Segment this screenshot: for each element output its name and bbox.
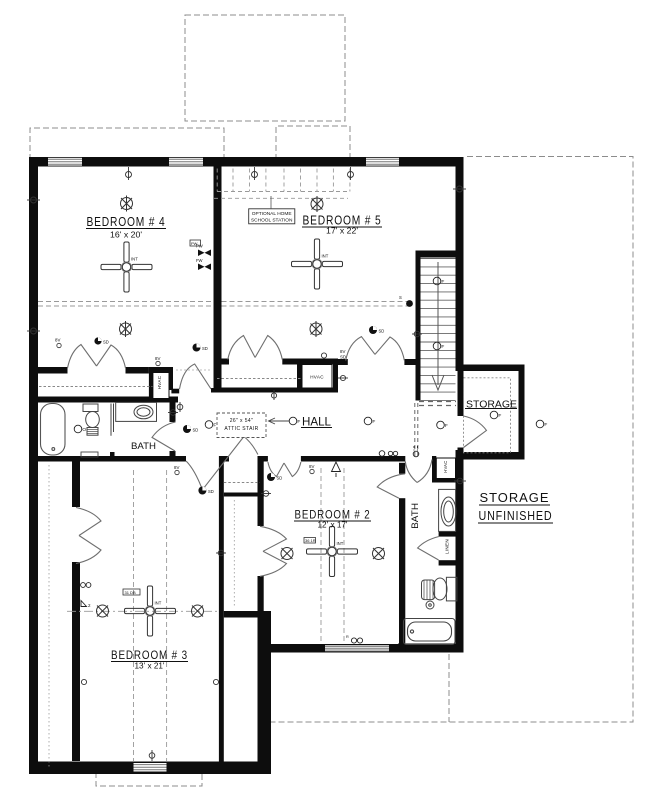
svg-text:BATH: BATH <box>410 503 421 529</box>
svg-text:8V: 8V <box>309 464 314 469</box>
svg-text:S: S <box>399 295 402 300</box>
svg-text:F: F <box>445 423 448 429</box>
svg-text:SCHOOL STATION: SCHOOL STATION <box>251 218 293 224</box>
svg-text:8V: 8V <box>340 349 345 354</box>
svg-text:OPTIONAL HOME: OPTIONAL HOME <box>252 211 292 217</box>
svg-text:F: F <box>213 423 216 429</box>
svg-text:INT: INT <box>131 257 138 262</box>
svg-text:F: F <box>297 419 300 425</box>
svg-text:F: F <box>498 413 501 419</box>
svg-text:BEDROOM # 5: BEDROOM # 5 <box>303 214 382 228</box>
svg-text:13' x 21': 13' x 21' <box>135 662 165 671</box>
svg-text:INT: INT <box>155 601 162 606</box>
svg-text:BEDROOM # 4: BEDROOM # 4 <box>87 215 166 229</box>
svg-text:F: F <box>441 279 444 285</box>
svg-text:SD: SD <box>193 428 199 433</box>
svg-text:SD: SD <box>340 355 346 360</box>
svg-text:F: F <box>544 422 547 428</box>
svg-text:SD: SD <box>208 489 214 494</box>
svg-text:INT: INT <box>322 254 329 259</box>
svg-text:HVAC: HVAC <box>310 375 324 380</box>
svg-text:SD: SD <box>277 476 283 481</box>
svg-text:UNFINISHED: UNFINISHED <box>479 508 553 523</box>
svg-text:SD: SD <box>379 329 385 334</box>
svg-text:F: F <box>372 419 375 425</box>
svg-text:HVAC: HVAC <box>157 375 162 389</box>
svg-text:26" x 54": 26" x 54" <box>230 418 254 424</box>
svg-text:FW: FW <box>196 258 203 263</box>
svg-text:16' x 20': 16' x 20' <box>110 231 143 240</box>
svg-text:PW: PW <box>191 241 198 246</box>
svg-text:SD: SD <box>103 340 109 345</box>
svg-text:STORAGE: STORAGE <box>480 490 550 505</box>
svg-text:LINEN: LINEN <box>445 539 450 554</box>
svg-text:BEDROOM # 3: BEDROOM # 3 <box>111 650 188 662</box>
svg-text:ATTIC STAIR: ATTIC STAIR <box>224 426 258 432</box>
svg-text:SD: SD <box>202 346 208 351</box>
svg-text:HVAC: HVAC <box>443 461 448 473</box>
svg-text:HALL: HALL <box>302 415 331 429</box>
svg-text:17' x 22': 17' x 22' <box>326 227 359 236</box>
svg-text:8V: 8V <box>55 338 60 343</box>
svg-text:BATH: BATH <box>131 441 156 451</box>
svg-text:R: R <box>346 635 349 639</box>
svg-text:8V: 8V <box>155 356 160 361</box>
svg-text:31 DB: 31 DB <box>125 590 136 595</box>
svg-text:12' x 17': 12' x 17' <box>318 521 348 530</box>
svg-text:F: F <box>441 344 444 350</box>
svg-text:8V: 8V <box>174 465 179 470</box>
svg-text:36 1R: 36 1R <box>305 538 316 543</box>
svg-text:INT: INT <box>337 541 344 546</box>
svg-text:O: O <box>82 427 86 433</box>
